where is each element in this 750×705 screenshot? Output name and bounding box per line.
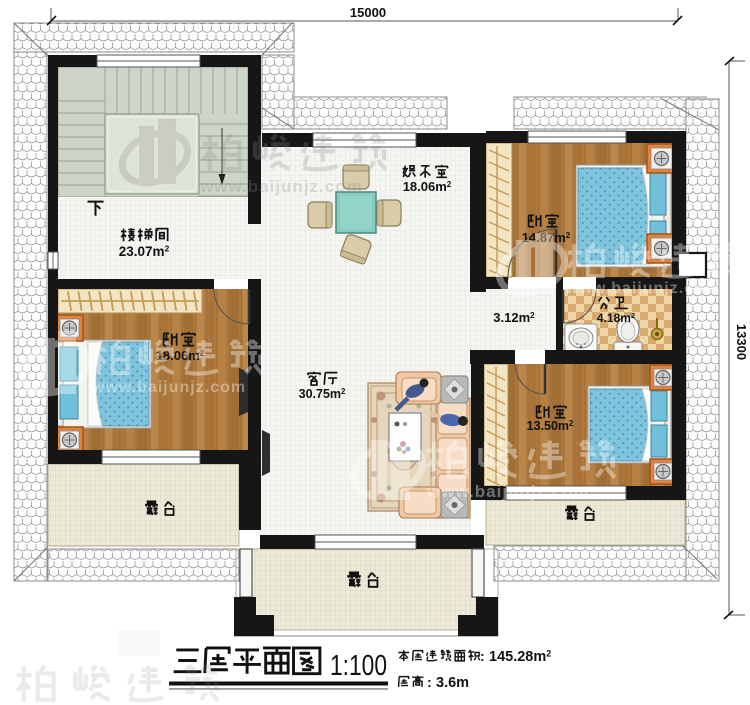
svg-text:1:100: 1:100 bbox=[330, 650, 387, 682]
svg-text:30.75m2: 30.75m2 bbox=[299, 387, 346, 401]
svg-text:13.50m2: 13.50m2 bbox=[527, 419, 574, 433]
svg-text::: : bbox=[427, 674, 432, 690]
svg-text:23.07m2: 23.07m2 bbox=[119, 244, 170, 259]
svg-text:4.18m2: 4.18m2 bbox=[597, 311, 635, 325]
svg-text:3.12m2: 3.12m2 bbox=[493, 310, 535, 325]
svg-text:15000: 15000 bbox=[350, 5, 386, 20]
svg-text:www.baijunjz.com: www.baijunjz.com bbox=[565, 280, 720, 297]
svg-text:13300: 13300 bbox=[734, 324, 749, 360]
svg-text:145.28m2: 145.28m2 bbox=[489, 648, 551, 665]
svg-text:www.baijunjz.com: www.baijunjz.com bbox=[91, 379, 246, 396]
svg-text:18.06m2: 18.06m2 bbox=[403, 179, 452, 194]
svg-text:www.baijunjz.com: www.baijunjz.com bbox=[199, 177, 363, 196]
svg-text:www.baijunjz.com: www.baijunjz.com bbox=[426, 482, 590, 501]
svg-text:3.6m: 3.6m bbox=[436, 675, 469, 691]
svg-text::: : bbox=[480, 648, 485, 664]
